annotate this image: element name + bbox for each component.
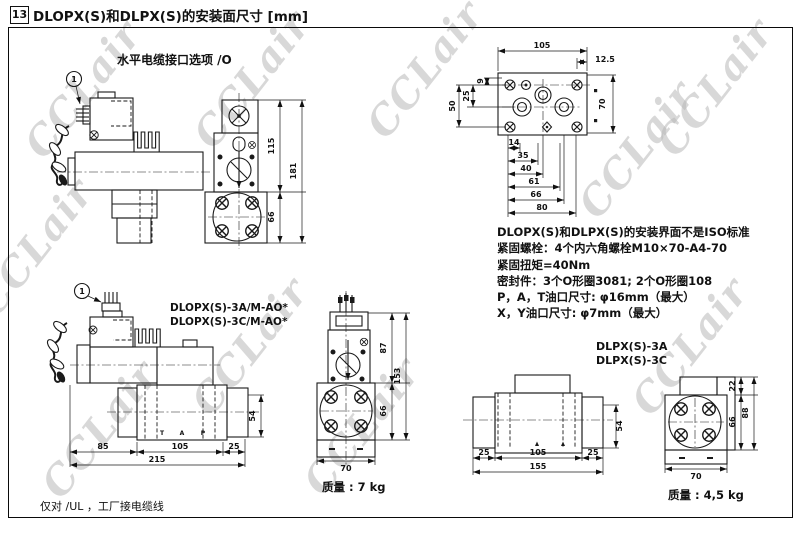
dim-88: 88 bbox=[741, 407, 750, 419]
dim-14: 14 bbox=[508, 138, 520, 147]
dim-181: 181 bbox=[289, 162, 298, 179]
cooling-fins-icon bbox=[134, 132, 159, 152]
spec-line: 紧固扭矩=40Nm bbox=[497, 257, 793, 273]
dim-12-5: 12.5 bbox=[595, 55, 615, 64]
section-number: 13 bbox=[10, 6, 29, 24]
drawing-mounting-face: 105 12.5 9 25 50 70 14 bbox=[440, 35, 672, 225]
coil-block bbox=[328, 330, 370, 383]
port-p: P bbox=[201, 430, 206, 437]
dim-35: 35 bbox=[517, 151, 529, 160]
weight-label-dlpx: 质量 : 4,5 kg bbox=[668, 487, 744, 503]
note-callout: 1 bbox=[75, 284, 102, 303]
dim-66: 66 bbox=[267, 211, 276, 223]
dim-25-right: 25 bbox=[587, 448, 599, 457]
dim-50: 50 bbox=[448, 100, 457, 112]
dim-85: 85 bbox=[97, 442, 109, 451]
plate bbox=[498, 73, 597, 135]
dim-105: 105 bbox=[530, 448, 547, 457]
cable-gland bbox=[47, 122, 70, 187]
dim-153: 153 bbox=[393, 368, 402, 385]
base-plate bbox=[665, 450, 727, 464]
spec-notes: DLOPX(S)和DLPX(S)的安装界面不是ISO标准 紧固螺栓：4个内六角螺… bbox=[497, 224, 793, 322]
screw-icon bbox=[90, 131, 99, 140]
datasheet-page: CCLair CCLair CCLair CCLair CCLair CCLai… bbox=[0, 0, 800, 535]
drawing-cable-option-front-view: 115 66 181 bbox=[200, 85, 312, 257]
valve-body bbox=[57, 152, 211, 190]
dim-25: 25 bbox=[228, 442, 240, 451]
dim-22: 22 bbox=[728, 380, 737, 391]
dim-105: 105 bbox=[534, 41, 551, 50]
port-a: A bbox=[180, 430, 185, 437]
weight-label-dlopx: 质量 : 7 kg bbox=[322, 479, 386, 495]
model-label-dlopx-3c: DLOPX(S)-3C/M-AO* bbox=[170, 316, 287, 328]
dim-54: 54 bbox=[615, 420, 624, 432]
dim-105: 105 bbox=[172, 442, 189, 451]
model-label-dlopx-3a: DLOPX(S)-3A/M-AO* bbox=[170, 302, 288, 314]
note-ref: 1 bbox=[71, 75, 77, 84]
dim-70: 70 bbox=[598, 98, 607, 110]
valve-body bbox=[463, 375, 613, 453]
dim-54: 54 bbox=[248, 410, 257, 422]
drawing-dlopx-front-view: 87 66 153 70 bbox=[305, 285, 423, 477]
coil-block bbox=[214, 133, 258, 192]
spec-line: P，A，T油口尺寸: φ16mm（最大） bbox=[497, 289, 793, 305]
dim-87: 87 bbox=[379, 342, 388, 353]
dim-25: 25 bbox=[462, 90, 471, 102]
dim-115: 115 bbox=[267, 137, 276, 154]
valve-body bbox=[665, 377, 735, 450]
dim-66: 66 bbox=[530, 190, 542, 199]
spec-line: X，Y油口尺寸: φ7mm（最大） bbox=[497, 305, 793, 321]
dim-80: 80 bbox=[536, 203, 548, 212]
connector-pins-icon bbox=[338, 293, 355, 312]
page-title: DLOPX(S)和DLPX(S)的安装面尺寸 [mm] bbox=[33, 5, 308, 25]
dim-155: 155 bbox=[530, 462, 547, 471]
note-ref: 1 bbox=[79, 287, 85, 296]
dim-25-left: 25 bbox=[478, 448, 490, 457]
spec-line: 紧固螺栓：4个内六角螺栓M10×70-A4-70 bbox=[497, 240, 793, 256]
spec-line: 密封件：3个O形圈3081; 2个O形圈108 bbox=[497, 273, 793, 289]
dimensions: 54 25 105 25 155 bbox=[473, 405, 624, 475]
dim-9: 9 bbox=[476, 78, 485, 84]
dimensions: 54 85 105 25 215 bbox=[70, 385, 264, 467]
cable-gland bbox=[45, 319, 68, 384]
drawing-cable-option-side-view: 1 bbox=[45, 68, 213, 250]
dim-40: 40 bbox=[520, 164, 532, 173]
cooling-fins-icon bbox=[135, 329, 160, 347]
port-block bbox=[205, 192, 267, 243]
dimensions: 105 12.5 9 25 50 70 14 bbox=[448, 41, 616, 217]
connector-pins-icon bbox=[102, 292, 120, 311]
valve-body bbox=[70, 340, 220, 385]
subplate bbox=[112, 190, 157, 243]
drawing-dlpx-side-view: 54 25 105 25 155 bbox=[445, 368, 637, 480]
dim-215: 215 bbox=[149, 455, 166, 464]
model-label-dlpx-3a: DLPX(S)-3A bbox=[596, 340, 667, 353]
dim-66: 66 bbox=[728, 416, 737, 428]
connector-pins-icon bbox=[76, 106, 90, 124]
port-t: T bbox=[160, 430, 165, 437]
spec-line: DLOPX(S)和DLPX(S)的安装界面不是ISO标准 bbox=[497, 224, 793, 240]
dim-61: 61 bbox=[528, 177, 540, 186]
dim-70: 70 bbox=[690, 472, 702, 481]
manifold-block: T A P bbox=[107, 385, 259, 440]
dim-66: 66 bbox=[379, 405, 388, 417]
cable-option-caption: 水平电缆接口选项 /O bbox=[117, 51, 232, 68]
dim-70: 70 bbox=[340, 464, 352, 473]
model-label-dlpx-3c: DLPX(S)-3C bbox=[596, 354, 667, 367]
top-block bbox=[222, 100, 258, 133]
note-callout: 1 bbox=[67, 72, 82, 105]
footnote: 仅对 /UL ，工厂接电缆线 bbox=[40, 498, 164, 514]
dimensions: 115 66 181 bbox=[258, 100, 306, 243]
terminal-box bbox=[330, 312, 368, 330]
